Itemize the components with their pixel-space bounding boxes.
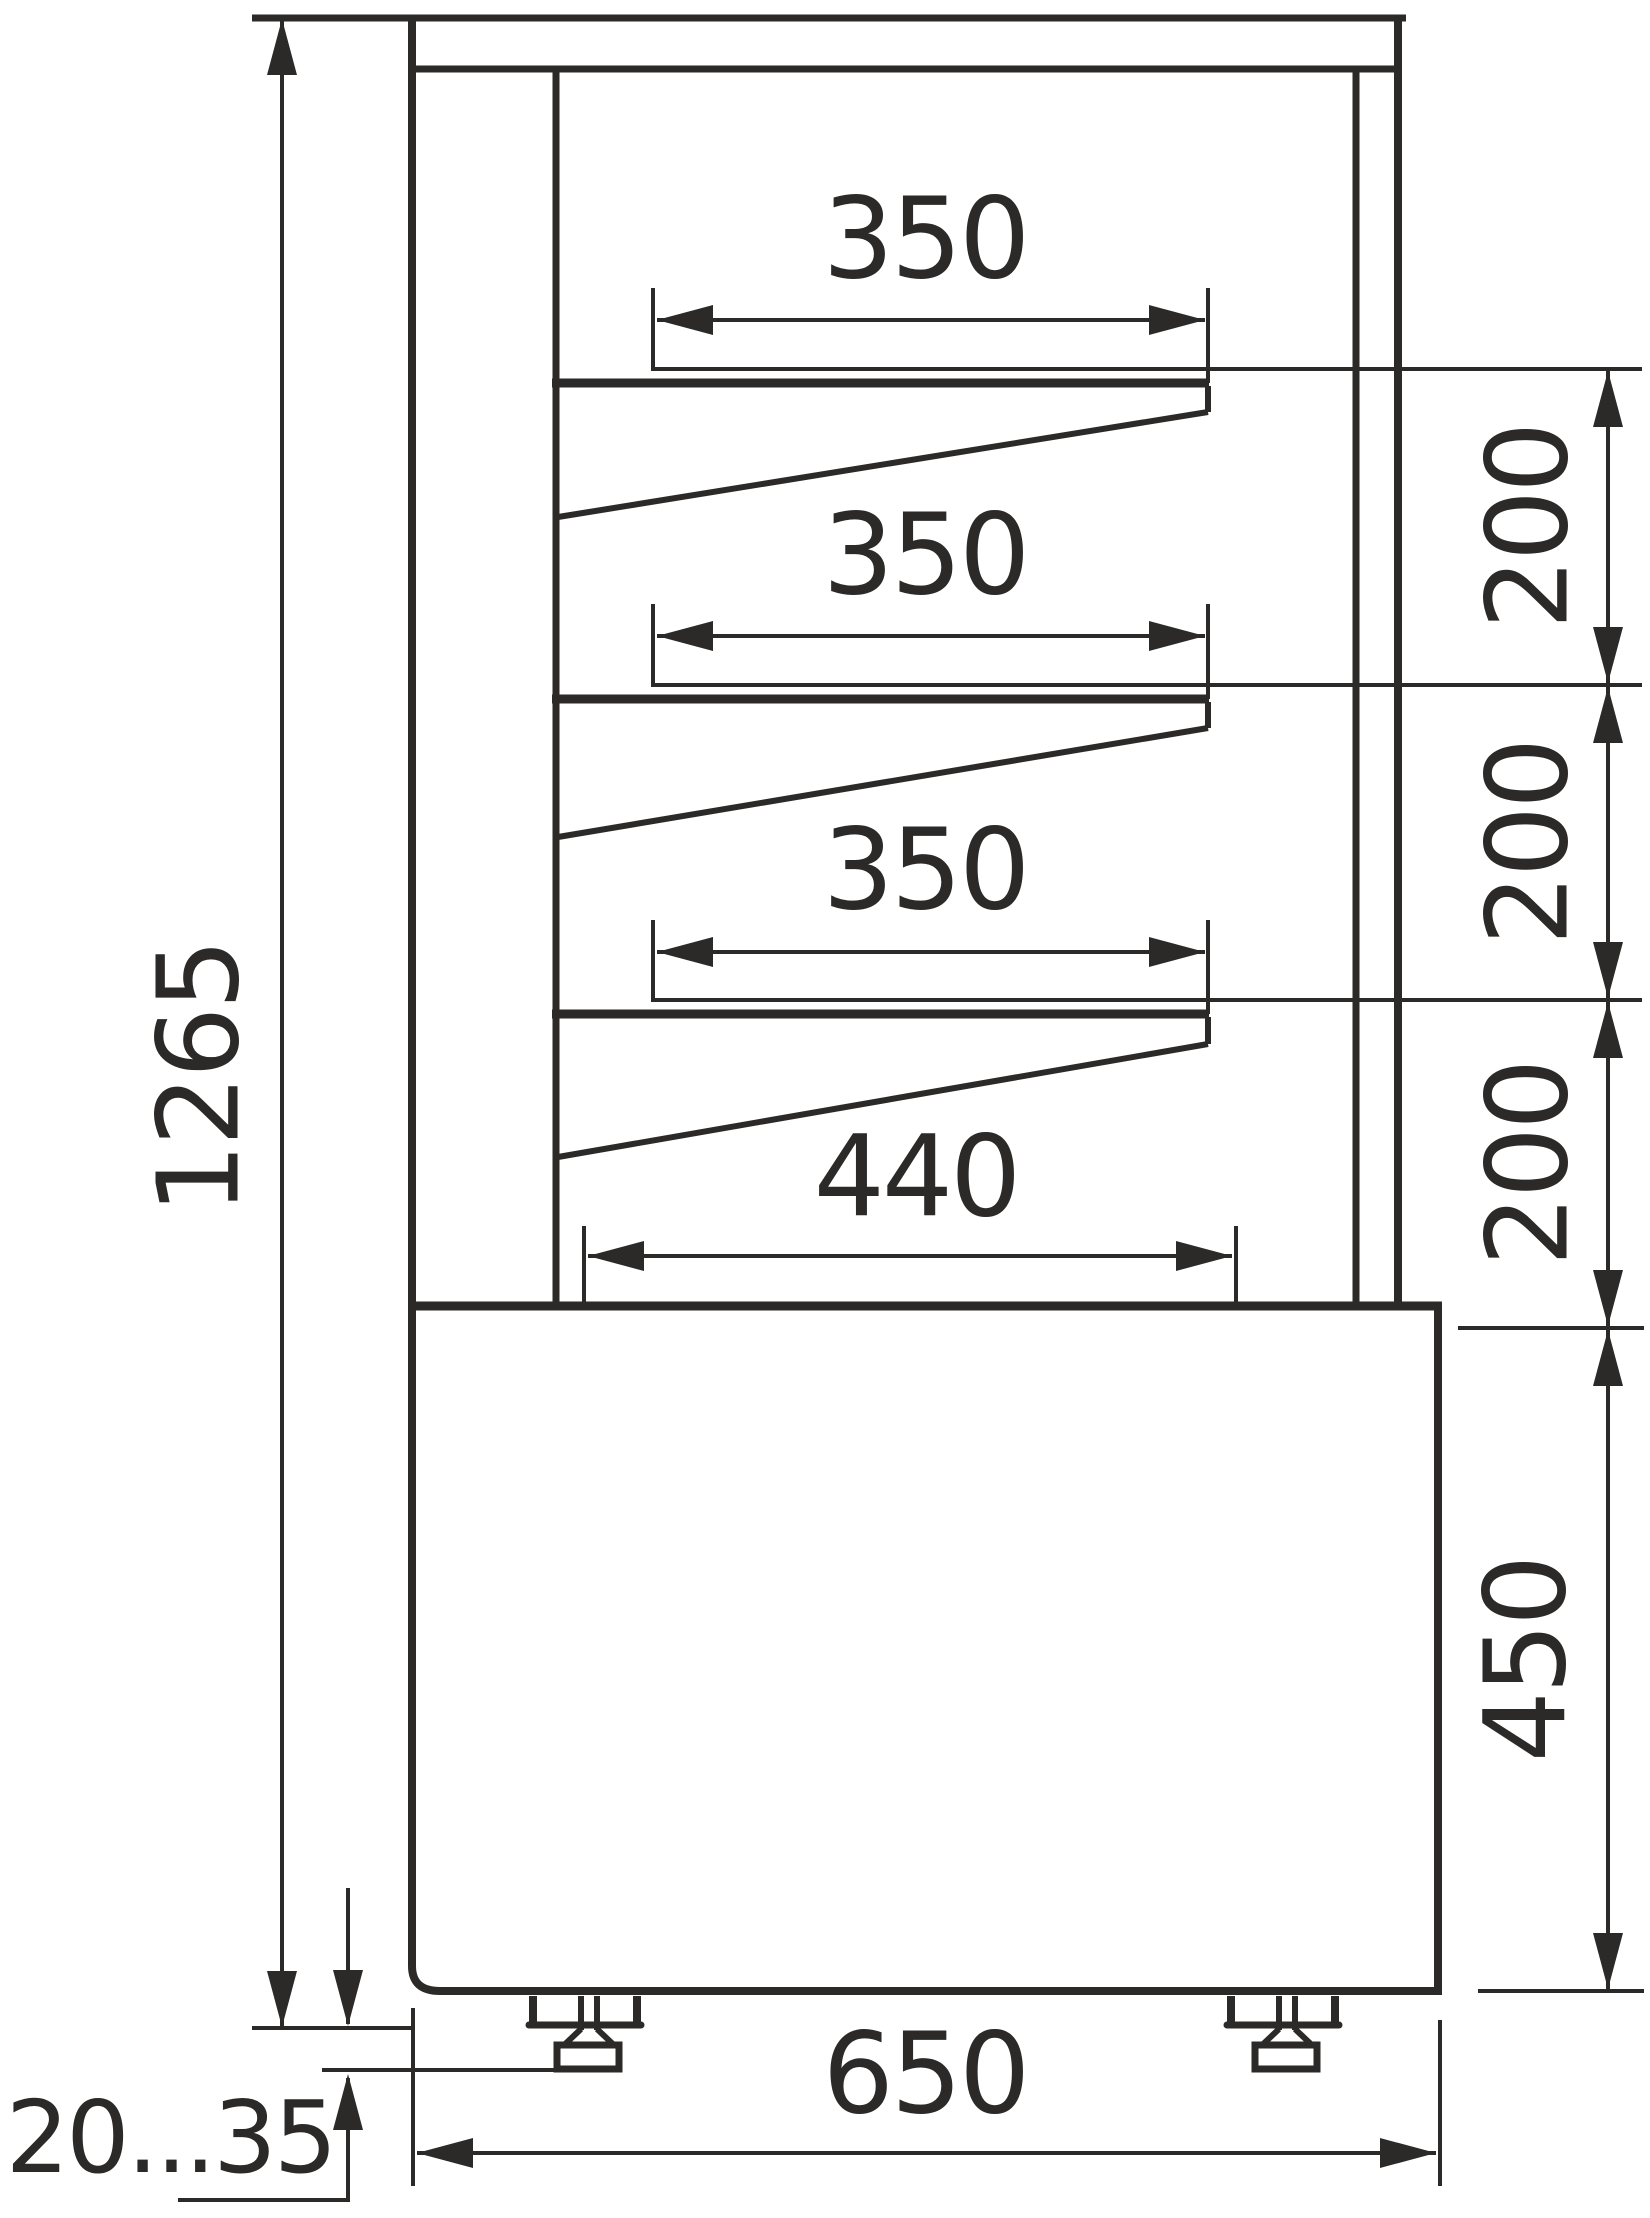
- dim-650-arrow-left: [417, 2138, 473, 2168]
- dim-label-base-height: 450: [1461, 1558, 1591, 1763]
- drawing-geometry: [178, 15, 1644, 2200]
- dim-200-2-arrow-bottom: [1593, 942, 1623, 998]
- dim-label-spacing-top: 200: [1463, 425, 1593, 630]
- dim-leg-arrow-down: [333, 1970, 363, 2026]
- dim-350-1-arrow-right: [1149, 305, 1205, 335]
- dim-200-1-arrow-bottom: [1593, 627, 1623, 683]
- dim-450-arrow-bottom: [1593, 1933, 1623, 1989]
- dim-leg-arrow-up: [333, 2074, 363, 2130]
- dim-200-3-arrow-bottom: [1593, 1270, 1623, 1326]
- dim-450-arrow-top: [1593, 1330, 1623, 1386]
- dim-350-2-arrow-right: [1149, 621, 1205, 651]
- dim-label-base-deck: 440: [814, 1112, 1019, 1242]
- dim-350-2-arrow-left: [657, 621, 713, 651]
- dim-label-overall-depth: 650: [823, 2009, 1028, 2139]
- base-cabinet-outline: [412, 1308, 1438, 1991]
- dim-label-overall-height: 1265: [134, 941, 264, 1214]
- dim-350-1-arrow-left: [657, 305, 713, 335]
- dim-200-3-arrow-top: [1593, 1002, 1623, 1058]
- dim-label-shelf-middle: 350: [823, 490, 1028, 620]
- dim-350-3-arrow-left: [657, 937, 713, 967]
- dim-200-2-arrow-top: [1593, 687, 1623, 743]
- display-case-section-drawing: 350 350 350 440 1265 200 200 200 450 650…: [0, 0, 1650, 2218]
- dim-440-arrow-left: [588, 1241, 644, 1271]
- dim-label-spacing-bottom: 200: [1463, 1062, 1593, 1267]
- leg-1-foot: [557, 2045, 619, 2069]
- dim-440-arrow-right: [1176, 1241, 1232, 1271]
- leg-2-foot: [1255, 2045, 1317, 2069]
- dim-200-1-arrow-top: [1593, 371, 1623, 427]
- technical-drawing-canvas: 350 350 350 440 1265 200 200 200 450 650…: [0, 0, 1650, 2218]
- dim-650-arrow-right: [1380, 2138, 1436, 2168]
- dim-1265-arrow-top: [267, 19, 297, 75]
- dim-label-leg-adjust: 20...35: [6, 2079, 335, 2196]
- dim-350-3-arrow-right: [1149, 937, 1205, 967]
- dim-1265-arrow-bottom: [267, 1971, 297, 2027]
- dim-label-shelf-bottom: 350: [823, 805, 1028, 935]
- dim-label-spacing-middle: 200: [1463, 741, 1593, 946]
- dim-label-shelf-top: 350: [823, 174, 1028, 304]
